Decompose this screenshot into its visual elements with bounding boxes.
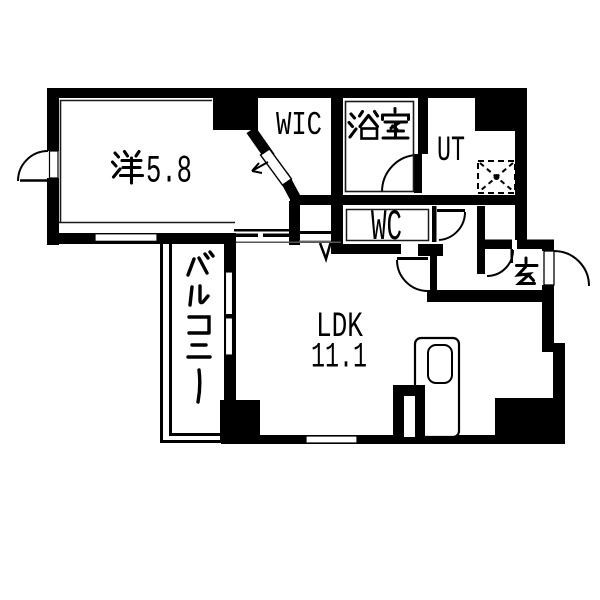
svg-text:5.8: 5.8 bbox=[146, 148, 192, 193]
svg-text:WIC: WIC bbox=[276, 106, 322, 144]
svg-text:WC: WC bbox=[371, 203, 402, 253]
svg-text:11.1: 11.1 bbox=[311, 337, 367, 377]
svg-text:UT: UT bbox=[437, 131, 465, 171]
